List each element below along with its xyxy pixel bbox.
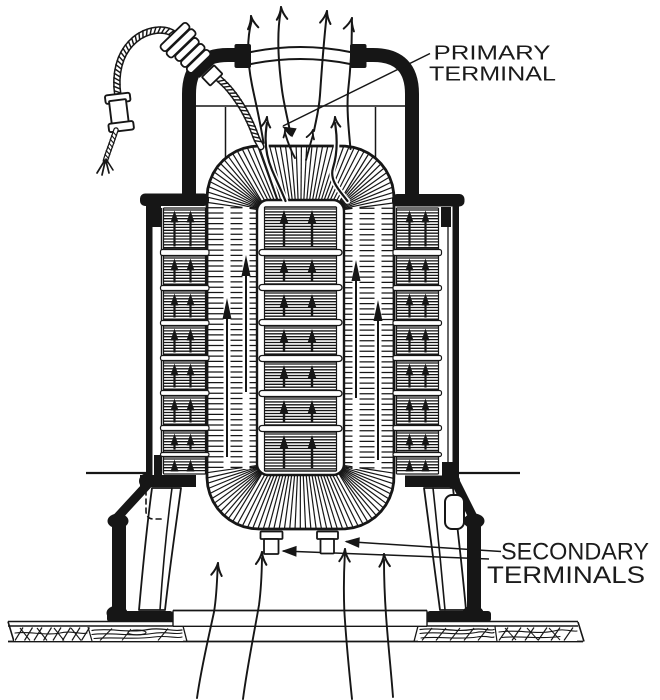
svg-text:TERMINAL: TERMINAL [429, 64, 556, 86]
svg-text:PRIMARY: PRIMARY [434, 43, 551, 65]
svg-text:TERMINALS: TERMINALS [487, 562, 645, 589]
